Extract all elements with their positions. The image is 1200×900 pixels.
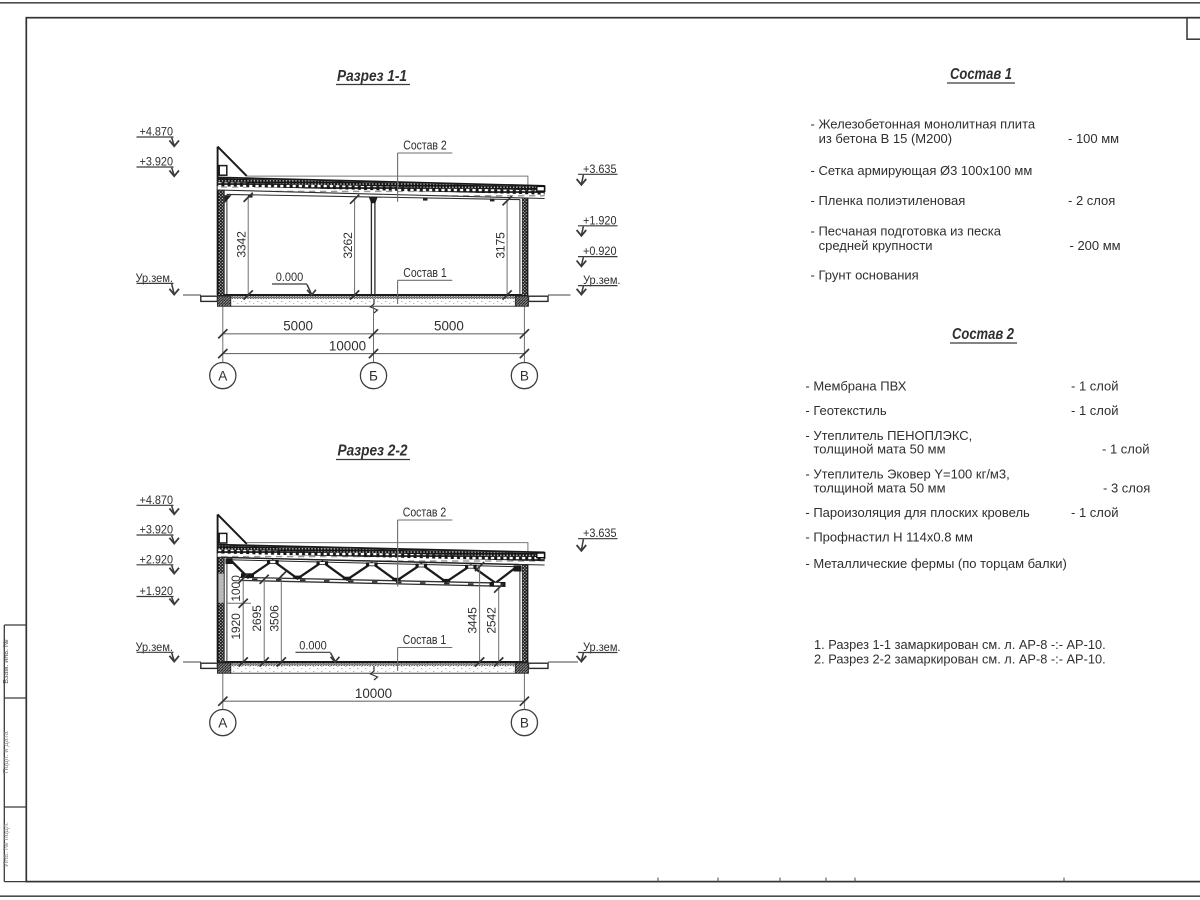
svg-text:5000: 5000 [283, 319, 313, 334]
svg-text:2695: 2695 [250, 605, 264, 632]
svg-text:3445: 3445 [466, 607, 480, 634]
svg-text:В: В [520, 716, 529, 731]
svg-text:- Песчаная подготовка из песка: - Песчаная подготовка из песка [811, 223, 1002, 238]
svg-text:Состав 1: Состав 1 [403, 265, 447, 280]
svg-text:3506: 3506 [267, 605, 281, 632]
svg-text:3175: 3175 [494, 232, 508, 259]
svg-text:10000: 10000 [355, 686, 392, 701]
svg-text:- 100 мм: - 100 мм [1068, 131, 1119, 146]
svg-text:- 3 слоя: - 3 слоя [1103, 480, 1150, 495]
svg-text:Разрез 1-1: Разрез 1-1 [337, 68, 407, 85]
svg-text:- Грунт основания: - Грунт основания [811, 267, 919, 282]
svg-text:- Мембрана ПВХ: - Мембрана ПВХ [805, 378, 906, 393]
svg-text:средней крупности: средней крупности [819, 238, 933, 253]
svg-text:Б: Б [369, 369, 378, 384]
svg-text:А: А [218, 716, 228, 731]
svg-text:- Пароизоляция для плоских кро: - Пароизоляция для плоских кровель [805, 505, 1030, 520]
svg-text:- 1 слой: - 1 слой [1071, 403, 1119, 418]
svg-text:0.000: 0.000 [276, 270, 304, 284]
svg-text:Состав 1: Состав 1 [403, 632, 447, 647]
svg-text:1. Разрез 1-1 замаркирован см.: 1. Разрез 1-1 замаркирован см. л. АР-8 -… [814, 637, 1106, 652]
svg-text:Состав 2: Состав 2 [403, 138, 447, 153]
svg-text:1920: 1920 [229, 613, 243, 640]
svg-text:- 1 слой: - 1 слой [1071, 378, 1119, 393]
svg-text:2542: 2542 [485, 607, 499, 634]
svg-text:Состав 2: Состав 2 [403, 505, 447, 520]
svg-text:- 2 слоя: - 2 слоя [1068, 193, 1115, 208]
svg-text:Инв. № подл.: Инв. № подл. [1, 822, 10, 867]
svg-text:- Железобетонная монолитная п: - Железобетонная монолитная плита [811, 116, 1036, 131]
svg-text:толщиной мата 50 мм: толщиной мата 50 мм [814, 442, 946, 457]
svg-text:- Утеплитель ПЕНОПЛЭКС,: - Утеплитель ПЕНОПЛЭКС, [805, 428, 972, 443]
svg-text:Подп. и дата: Подп. и дата [1, 731, 10, 773]
svg-text:- Сетка армирующая Ø3 100x100: - Сетка армирующая Ø3 100x100 мм [811, 163, 1033, 178]
svg-text:- Пленка полиэтиленовая: - Пленка полиэтиленовая [811, 193, 966, 208]
svg-text:3262: 3262 [341, 232, 355, 259]
svg-text:В: В [520, 369, 529, 384]
svg-text:- 200 мм: - 200 мм [1070, 238, 1121, 253]
svg-text:- Профнастил Н 114х0.8 мм: - Профнастил Н 114х0.8 мм [805, 530, 973, 545]
svg-text:Состав 1: Состав 1 [950, 66, 1012, 83]
svg-text:1000: 1000 [229, 575, 243, 602]
svg-text:из бетона В 15 (М200): из бетона В 15 (М200) [819, 131, 953, 146]
svg-text:Взам. инв. №: Взам. инв. № [1, 639, 10, 684]
svg-text:0.000: 0.000 [299, 638, 327, 652]
svg-text:толщиной мата 50 мм: толщиной мата 50 мм [814, 480, 946, 495]
svg-text:Разрез 2-2: Разрез 2-2 [338, 443, 408, 460]
svg-text:- Утеплитель Эковер Y=100 кг/м: - Утеплитель Эковер Y=100 кг/м3, [805, 466, 1009, 481]
svg-text:10000: 10000 [329, 338, 366, 353]
svg-text:- 1 слой: - 1 слой [1071, 505, 1119, 520]
svg-text:А: А [218, 369, 228, 384]
svg-text:Состав 2: Состав 2 [952, 326, 1014, 343]
svg-text:- Металлические фермы (по торц: - Металлические фермы (по торцам балки) [805, 556, 1066, 571]
svg-text:5000: 5000 [434, 319, 464, 334]
svg-text:3342: 3342 [235, 231, 249, 258]
svg-text:- 1 слой: - 1 слой [1102, 442, 1150, 457]
svg-text:- Геотекстиль: - Геотекстиль [805, 403, 886, 418]
svg-text:2. Разрез 2-2 замаркирован см.: 2. Разрез 2-2 замаркирован см. л. АР-8 -… [814, 651, 1106, 666]
